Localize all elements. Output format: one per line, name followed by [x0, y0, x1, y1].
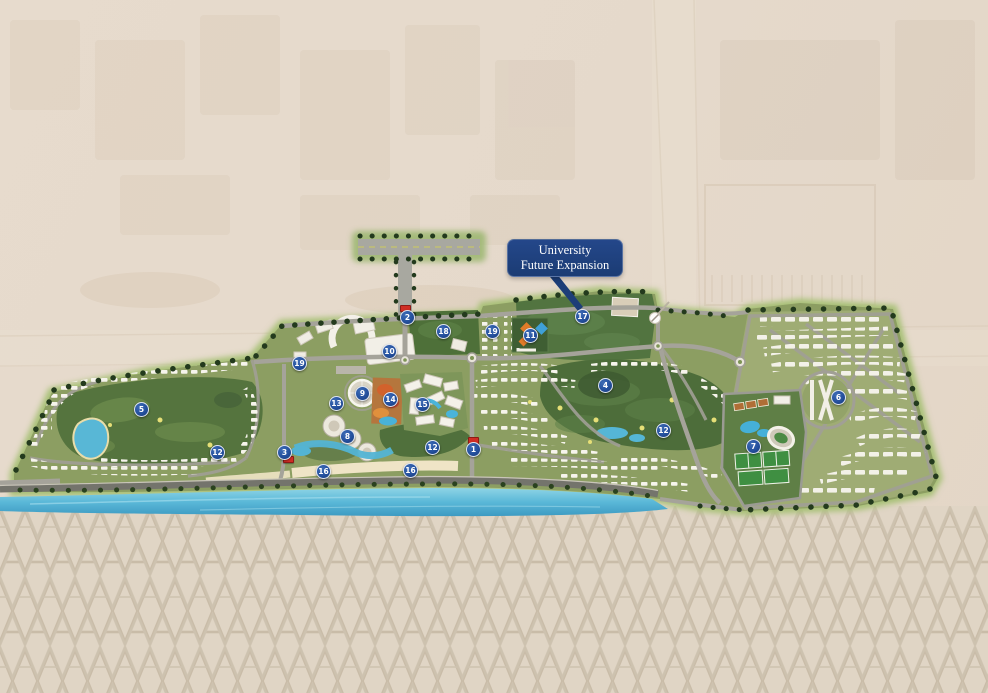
masterplan-canvas: 1234567891011121212131415161617181919 Un…	[0, 0, 988, 693]
map-marker-13[interactable]: 13	[329, 396, 344, 411]
map-marker-16[interactable]: 16	[316, 464, 331, 479]
university-expansion-callout: University Future Expansion	[507, 239, 623, 277]
map-marker-15[interactable]: 15	[415, 397, 430, 412]
map-markers: 1234567891011121212131415161617181919	[0, 0, 988, 693]
callout-line2: Future Expansion	[521, 258, 610, 273]
callout-line1: University	[539, 243, 592, 258]
map-marker-17[interactable]: 17	[575, 309, 590, 324]
map-marker-10[interactable]: 10	[382, 344, 397, 359]
map-marker-16[interactable]: 16	[403, 463, 418, 478]
map-marker-7[interactable]: 7	[746, 439, 761, 454]
map-marker-8[interactable]: 8	[340, 429, 355, 444]
map-marker-5[interactable]: 5	[134, 402, 149, 417]
map-marker-12[interactable]: 12	[210, 445, 225, 460]
map-marker-12[interactable]: 12	[425, 440, 440, 455]
map-marker-3[interactable]: 3	[277, 445, 292, 460]
map-marker-19[interactable]: 19	[485, 324, 500, 339]
map-marker-14[interactable]: 14	[383, 392, 398, 407]
map-marker-18[interactable]: 18	[436, 324, 451, 339]
map-marker-6[interactable]: 6	[831, 390, 846, 405]
map-marker-1[interactable]: 1	[466, 442, 481, 457]
map-marker-19[interactable]: 19	[292, 356, 307, 371]
map-marker-11[interactable]: 11	[523, 328, 538, 343]
map-marker-12[interactable]: 12	[656, 423, 671, 438]
map-marker-2[interactable]: 2	[400, 310, 415, 325]
map-marker-9[interactable]: 9	[355, 386, 370, 401]
map-marker-4[interactable]: 4	[598, 378, 613, 393]
